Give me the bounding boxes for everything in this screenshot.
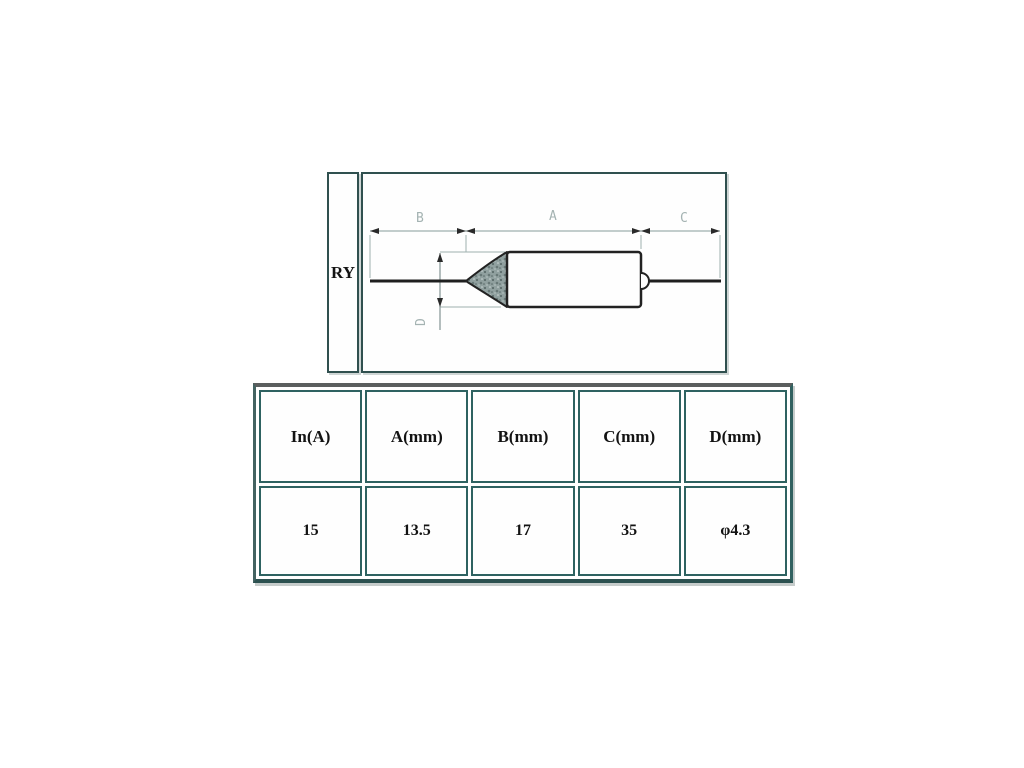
value-cell-a-mm: 13.5 xyxy=(365,486,468,576)
header-cell-d-mm: D(mm) xyxy=(684,390,787,483)
value-cell-b-mm: 17 xyxy=(471,486,574,576)
dimension-label-b: B xyxy=(416,211,424,226)
header-cell-b-mm: B(mm) xyxy=(471,390,574,483)
value-cell-c-mm: 35 xyxy=(578,486,681,576)
value-cell-in-a: 15 xyxy=(259,486,362,576)
header-cell-in-a: In(A) xyxy=(259,390,362,483)
fuse-body xyxy=(507,252,641,307)
dimension-label-d: D xyxy=(414,318,429,326)
thermal-fuse-dimension-drawing: B A C D xyxy=(363,174,721,367)
fuse-epoxy-cone xyxy=(466,252,507,307)
series-label: RY xyxy=(331,263,355,283)
page-canvas: RY xyxy=(0,0,1024,768)
header-cell-c-mm: C(mm) xyxy=(578,390,681,483)
diagram-drawing-box: B A C D xyxy=(361,172,727,373)
diagram-series-box: RY xyxy=(327,172,359,373)
table-header-row: In(A) A(mm) B(mm) C(mm) D(mm) xyxy=(259,390,787,483)
dimension-label-c: C xyxy=(680,211,688,226)
dimension-label-a: A xyxy=(549,209,557,224)
table-value-row: 15 13.5 17 35 φ4.3 xyxy=(259,486,787,576)
value-cell-d-mm: φ4.3 xyxy=(684,486,787,576)
header-cell-a-mm: A(mm) xyxy=(365,390,468,483)
fuse-end-bump xyxy=(641,273,649,289)
spec-table: In(A) A(mm) B(mm) C(mm) D(mm) 15 13.5 17… xyxy=(253,383,793,583)
